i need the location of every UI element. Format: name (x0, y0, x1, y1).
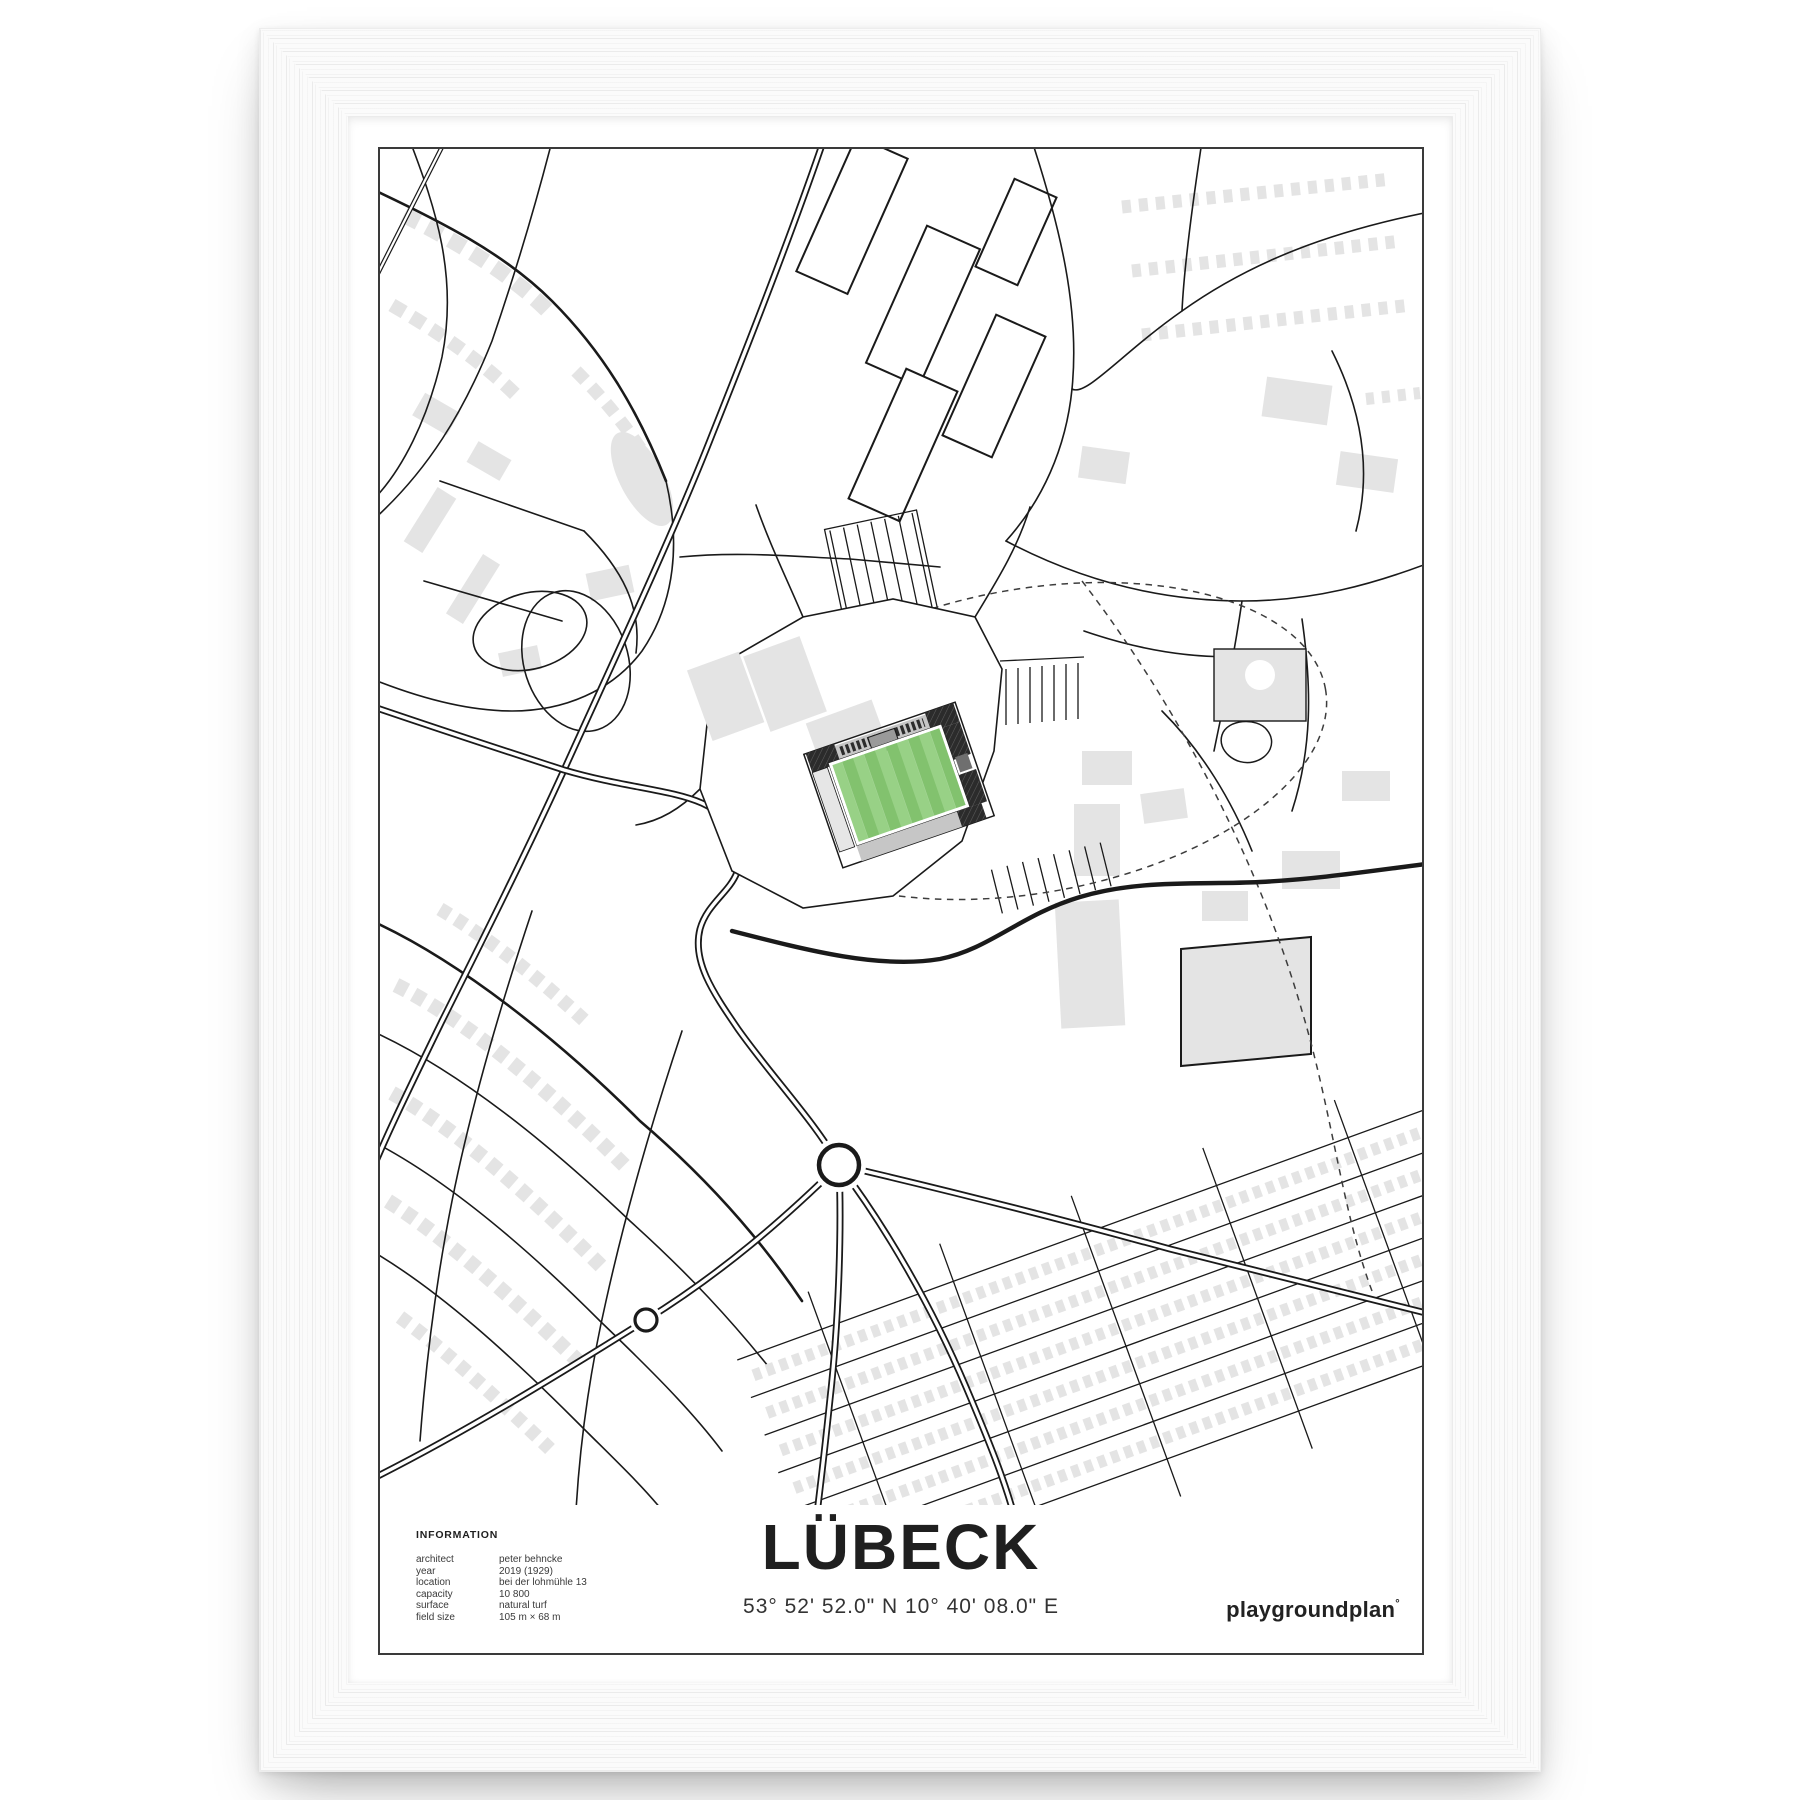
frame-bar-bottom (260, 1683, 1540, 1771)
industrial-buildings (796, 149, 1056, 521)
brand-mark: ° (1395, 1598, 1400, 1610)
frame-bar-left (260, 29, 348, 1771)
pond (1221, 721, 1271, 762)
roundabout-large (812, 1138, 866, 1192)
frame-bar-top (260, 29, 1540, 117)
poster-title: LÜBECK (380, 1515, 1422, 1579)
mat-board: INFORMATION architectpeter behncke year2… (348, 117, 1452, 1683)
city-map (380, 149, 1422, 1505)
picture-frame: INFORMATION architectpeter behncke year2… (259, 28, 1541, 1772)
city-map-svg (380, 149, 1422, 1505)
brand-text: playgroundplan (1226, 1597, 1395, 1622)
frame-bar-right (1452, 29, 1540, 1771)
product-photo: INFORMATION architectpeter behncke year2… (0, 0, 1800, 1800)
roundabout-small (630, 1304, 662, 1336)
big-building (1181, 937, 1311, 1066)
brand-logo: playgroundplan° (1226, 1597, 1400, 1623)
poster: INFORMATION architectpeter behncke year2… (378, 147, 1424, 1655)
